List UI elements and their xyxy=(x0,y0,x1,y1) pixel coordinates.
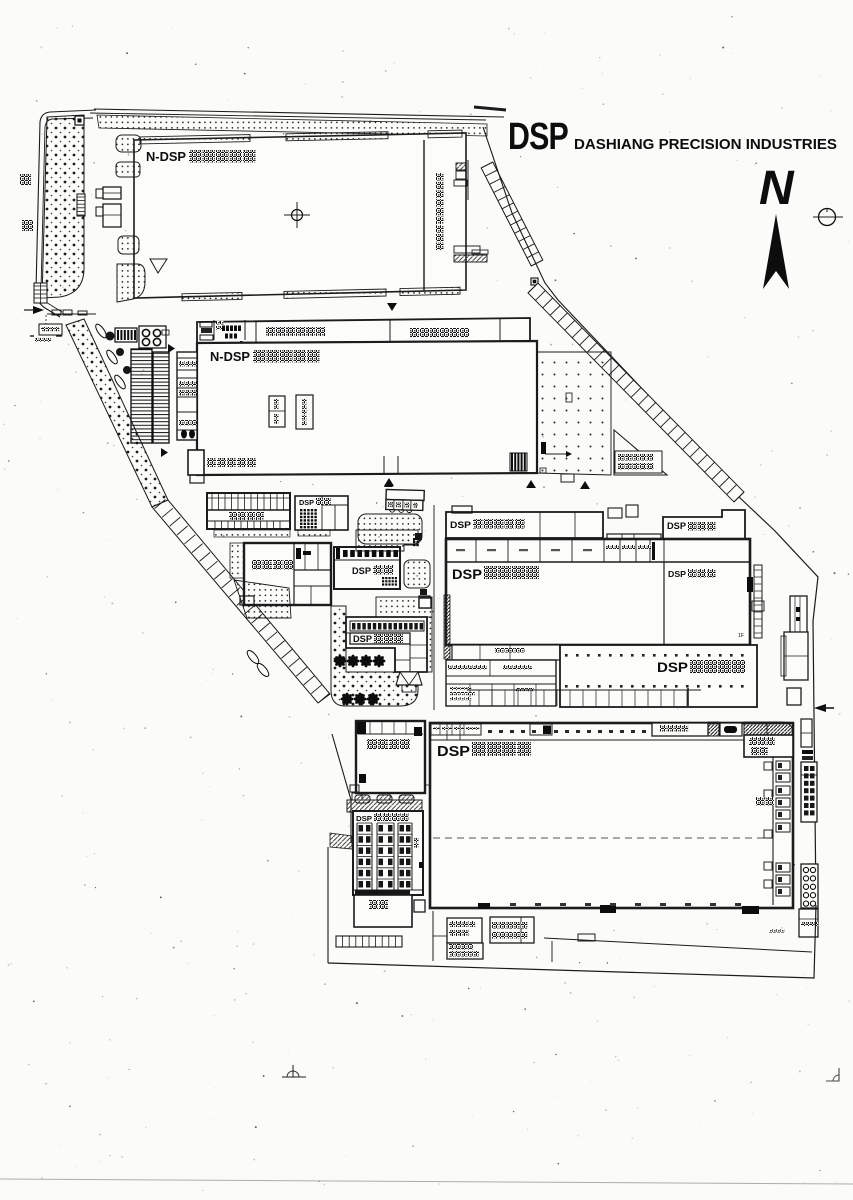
svg-text:DSP: DSP xyxy=(450,520,472,531)
svg-text:N-DSP: N-DSP xyxy=(210,349,250,364)
svg-text:N-DSP: N-DSP xyxy=(146,149,186,164)
svg-text:DSP: DSP xyxy=(508,116,569,158)
svg-text:DSP: DSP xyxy=(452,566,482,582)
svg-text:DSP: DSP xyxy=(668,569,686,579)
svg-text:DSP: DSP xyxy=(667,521,686,531)
svg-text:DSP: DSP xyxy=(353,634,372,644)
svg-text:DSP: DSP xyxy=(352,566,371,576)
svg-text:1F: 1F xyxy=(738,633,744,639)
svg-text:DSP: DSP xyxy=(437,743,470,760)
svg-text:N: N xyxy=(759,162,795,215)
svg-text:DASHIANG PRECISION INDUSTRIES: DASHIANG PRECISION INDUSTRIES xyxy=(574,136,837,153)
svg-text:DSP: DSP xyxy=(356,814,372,823)
svg-text:DSP: DSP xyxy=(657,659,688,675)
svg-text:DSP: DSP xyxy=(299,498,314,507)
